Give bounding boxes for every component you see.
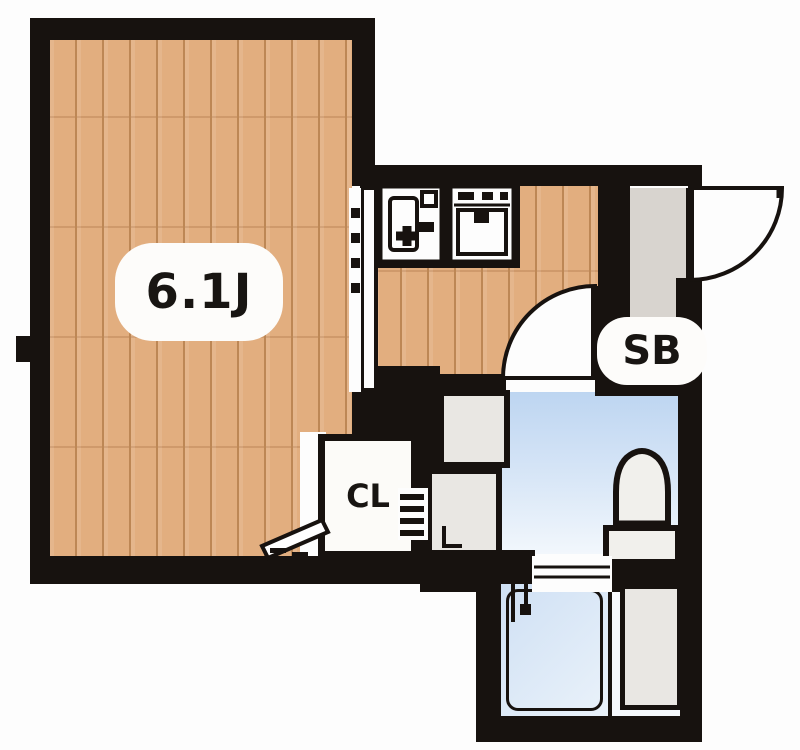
entrance-door-swing-icon [690,186,782,280]
wall-segment [598,186,630,334]
washbasin-icon [438,390,510,468]
shoe-box-label: SB [622,328,681,374]
shoe-box-badge: SB [597,317,707,385]
closet-label: CL [346,477,390,515]
main-room-label: 6.1J [146,264,253,320]
kitchen-counter [372,180,520,268]
wall-segment [352,18,375,186]
wall-segment [476,556,497,742]
bathtub-inner [506,589,603,711]
wall-segment [678,392,702,558]
closet-box: CL [318,434,418,558]
floor-plan: CL [0,0,800,750]
bathtub-icon [497,580,612,720]
sliding-door-icon [360,186,378,392]
bath-pan [620,584,682,710]
washing-machine-pan-icon [426,468,502,556]
wall-segment [30,18,375,40]
wall-segment [30,18,50,584]
main-room-size-badge: 6.1J [115,243,283,341]
wall-segment [30,556,445,584]
wall-pipe-stub [16,336,32,362]
